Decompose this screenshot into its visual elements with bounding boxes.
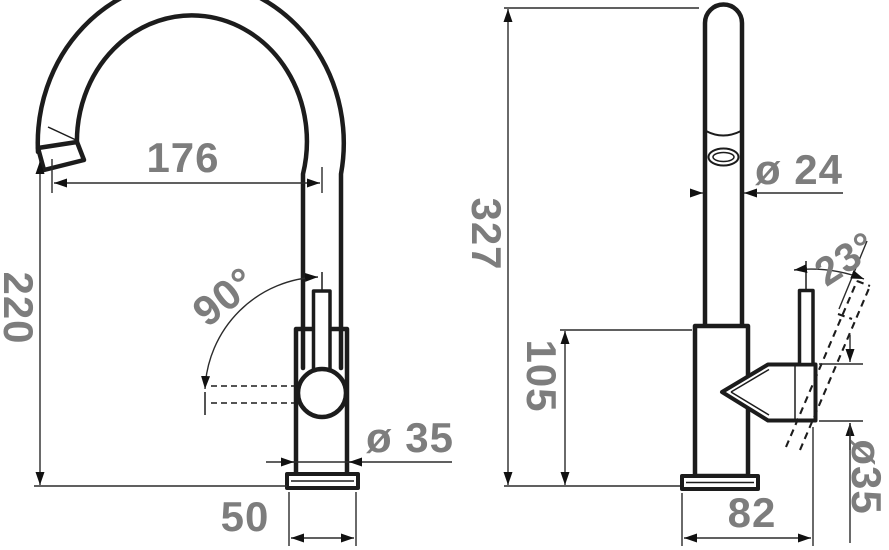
front-view: [38, 0, 358, 488]
label-body-height: 105: [518, 339, 565, 412]
label-base-width: 50: [221, 493, 270, 540]
label-base-depth: 82: [728, 489, 777, 536]
handle-lever-side: [800, 291, 814, 365]
spout-tip-cap: [38, 142, 84, 170]
faucet-technical-drawing: 176 220 90° ø 35 50: [0, 0, 889, 550]
drawing-canvas: 176 220 90° ø 35 50: [0, 0, 889, 550]
spout-outlet-ring-inner: [713, 153, 734, 162]
dim-base-width: 50: [221, 492, 356, 546]
label-handle-tilt: 23°: [807, 223, 884, 294]
dim-housing-diameter: ø35: [819, 335, 889, 543]
front-view-dimensions: 176 220 90° ø 35 50: [0, 134, 454, 546]
side-view-dimensions: 327 105 ø 24 23° ø35: [463, 8, 889, 546]
label-spout-reach: 176: [146, 134, 219, 181]
dim-spout-reach: 176: [52, 134, 322, 193]
lever-tilted-dash-tip: [857, 281, 870, 286]
dim-overall-height: 327: [463, 8, 699, 486]
dim-spout-tube-diameter: ø 24: [691, 146, 843, 193]
dim-body-height: 105: [518, 330, 692, 485]
label-spout-height: 220: [0, 271, 42, 344]
label-overall-height: 327: [463, 197, 510, 270]
aerator-line: [48, 127, 76, 140]
spout-outlet-edge: [706, 131, 741, 136]
lever-tilted-dash-mid: [838, 314, 852, 319]
label-body-diameter: ø 35: [366, 414, 454, 461]
handle-rod-front: [314, 291, 331, 370]
ball-joint: [298, 369, 346, 417]
label-housing-diameter: ø35: [843, 439, 889, 514]
label-handle-swing: 90°: [184, 257, 265, 335]
label-spout-tube-diameter: ø 24: [755, 146, 843, 193]
dim-spout-height: 220: [0, 161, 287, 486]
